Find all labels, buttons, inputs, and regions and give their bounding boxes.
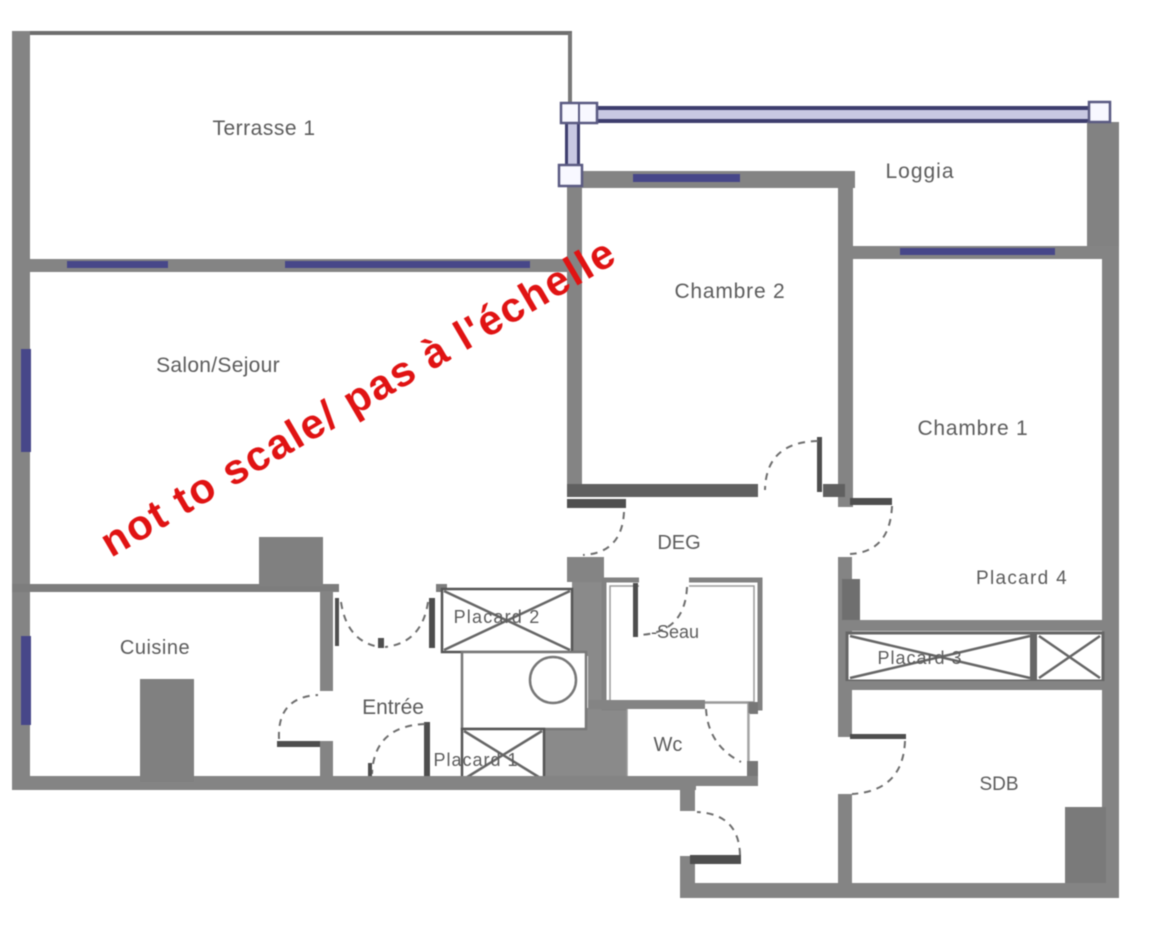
- svg-text:DEG: DEG: [657, 532, 700, 554]
- svg-text:Entrée: Entrée: [362, 696, 424, 719]
- svg-text:Chambre 1: Chambre 1: [917, 417, 1028, 440]
- svg-text:Loggia: Loggia: [885, 160, 954, 183]
- svg-text:Wc: Wc: [654, 734, 683, 756]
- svg-text:Salon/Sejour: Salon/Sejour: [156, 354, 280, 377]
- svg-text:Terrasse 1: Terrasse 1: [212, 117, 315, 140]
- svg-text:Placard 3: Placard 3: [877, 648, 962, 668]
- svg-text:SDB: SDB: [979, 774, 1018, 795]
- svg-text:Placard 1: Placard 1: [433, 750, 518, 770]
- svg-text:Placard 2: Placard 2: [454, 607, 541, 627]
- svg-text:Cuisine: Cuisine: [120, 637, 190, 659]
- svg-text:Chambre 2: Chambre 2: [674, 280, 785, 303]
- svg-text:-Seau: -Seau: [651, 622, 699, 642]
- svg-text:Placard 4: Placard 4: [976, 568, 1068, 589]
